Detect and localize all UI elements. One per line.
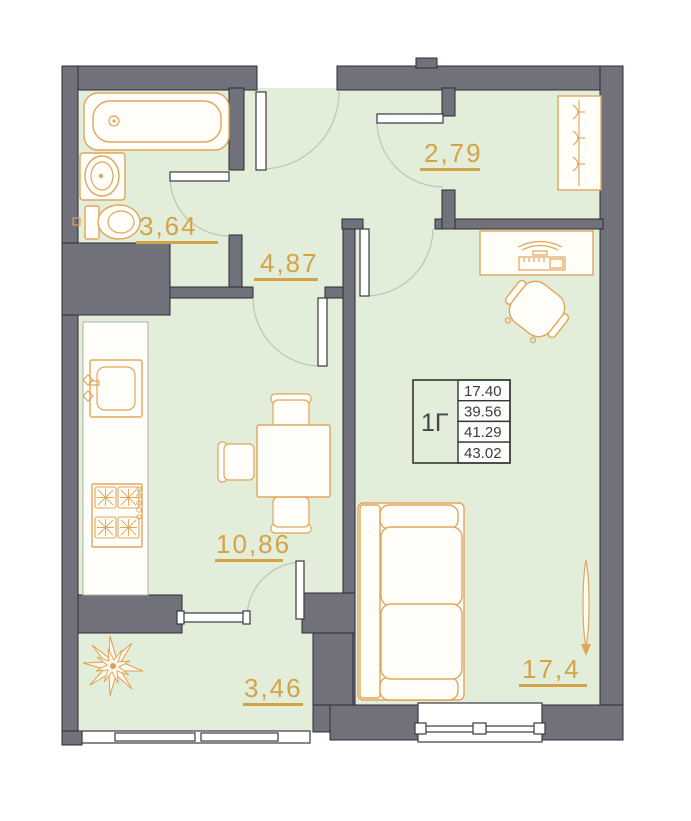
- floor-plan-page: 1Г 17.40 39.56 41.29 43.02 3,64 4,87 2,7…: [0, 0, 691, 821]
- wall-top-right: [337, 66, 623, 90]
- hallway-area-label: 4,87: [260, 248, 319, 278]
- balcony-area-underline: [243, 703, 303, 706]
- wall-bottom-left: [330, 705, 418, 740]
- wall-balcony-post-left: [62, 731, 82, 745]
- living-bay-window-handle-right: [534, 723, 545, 734]
- wall-bottom-right: [542, 705, 623, 740]
- wall-central-cap: [342, 219, 363, 229]
- balcony-glazing-pane-2: [201, 733, 278, 741]
- living-door-leaf: [360, 229, 369, 296]
- balcony-area-label: 3,46: [244, 673, 303, 703]
- wall-right: [600, 66, 623, 740]
- bathroom-door-leaf: [170, 172, 229, 181]
- area-value-3: 41.29: [464, 424, 502, 441]
- wardrobe: [558, 96, 601, 190]
- wall-kitchen-bottom: [78, 595, 182, 633]
- wall-balcony-right: [313, 633, 353, 706]
- wall-dressing-left-upper: [442, 88, 455, 116]
- wall-kitchen-top-left: [170, 287, 253, 298]
- entrance-door-leaf: [256, 92, 266, 170]
- hallway-area-underline: [254, 278, 318, 281]
- living-bay-window-handle-left: [415, 723, 426, 734]
- living-area-label: 17,4: [522, 654, 581, 684]
- dining-chair-bottom: [271, 497, 311, 533]
- wall-shaft-block: [62, 243, 170, 315]
- kitchen-sink: [83, 360, 142, 417]
- kitchen-area-label: 10,86: [216, 529, 291, 559]
- wall-hall-living: [435, 219, 603, 229]
- kitchen-window: [181, 613, 246, 622]
- balcony-door-leaf: [296, 561, 304, 619]
- stove: [92, 484, 142, 547]
- dressing-area-underline: [420, 168, 480, 171]
- floor-plan-drawing: 1Г 17.40 39.56 41.29 43.02 3,64 4,87 2,7…: [0, 0, 691, 821]
- bathroom-area-label: 3,64: [139, 211, 198, 241]
- desk: [480, 231, 593, 275]
- wall-left: [62, 66, 78, 745]
- bathroom-sink: [80, 153, 125, 200]
- dressing-area-label: 2,79: [424, 138, 483, 168]
- wall-balcony-right-foot: [313, 705, 330, 732]
- area-value-4: 43.02: [464, 445, 502, 462]
- sofa: [358, 503, 464, 700]
- area-value-1: 17.40: [464, 383, 502, 400]
- kitchen-area-underline: [215, 559, 283, 562]
- living-area-underline: [519, 684, 587, 687]
- wall-top-bump: [416, 58, 437, 68]
- dressing-door-leaf: [377, 114, 443, 123]
- wall-balcony-corner: [302, 593, 355, 633]
- wall-top-left: [62, 66, 257, 90]
- living-bay-window-handle-center: [473, 723, 486, 734]
- kitchen-door-leaf: [318, 298, 327, 366]
- kitchen-window-cap-right: [243, 611, 250, 624]
- bathroom-area-underline: [136, 241, 218, 244]
- unit-label: 1Г: [421, 409, 449, 437]
- wall-bathroom-right: [229, 88, 244, 170]
- bathtub: [84, 93, 229, 150]
- area-value-2: 39.56: [464, 404, 502, 421]
- wall-vestibule-stub: [229, 235, 242, 287]
- balcony-glazing-pane-1: [115, 733, 195, 741]
- wall-dressing-left-lower: [442, 190, 455, 229]
- kitchen-window-cap-left: [177, 611, 184, 624]
- dining-chair-left: [218, 442, 254, 482]
- wall-kitchen-top-right: [325, 287, 343, 298]
